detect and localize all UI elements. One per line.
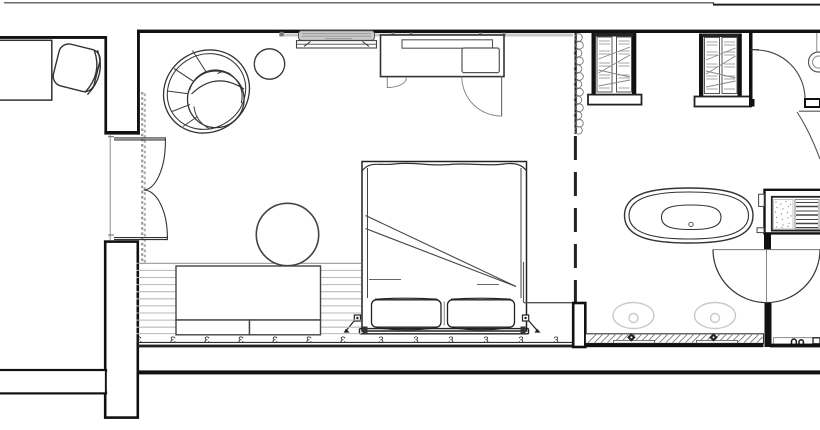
svg-text:Ɛ: Ɛ bbox=[238, 335, 244, 346]
svg-text:Ɛ: Ɛ bbox=[306, 335, 312, 346]
svg-text:3: 3 bbox=[448, 335, 453, 346]
svg-text:Ɛ: Ɛ bbox=[170, 335, 176, 346]
svg-text:Ɛ: Ɛ bbox=[272, 335, 278, 346]
svg-text:3: 3 bbox=[483, 335, 488, 346]
svg-text:3: 3 bbox=[378, 335, 383, 346]
svg-text:Ɛ: Ɛ bbox=[340, 335, 346, 346]
svg-text:Ɛ: Ɛ bbox=[204, 335, 210, 346]
svg-text:Ɛ: Ɛ bbox=[136, 335, 142, 346]
svg-text:3: 3 bbox=[518, 335, 523, 346]
svg-text:3: 3 bbox=[413, 335, 418, 346]
svg-text:3: 3 bbox=[553, 335, 558, 346]
